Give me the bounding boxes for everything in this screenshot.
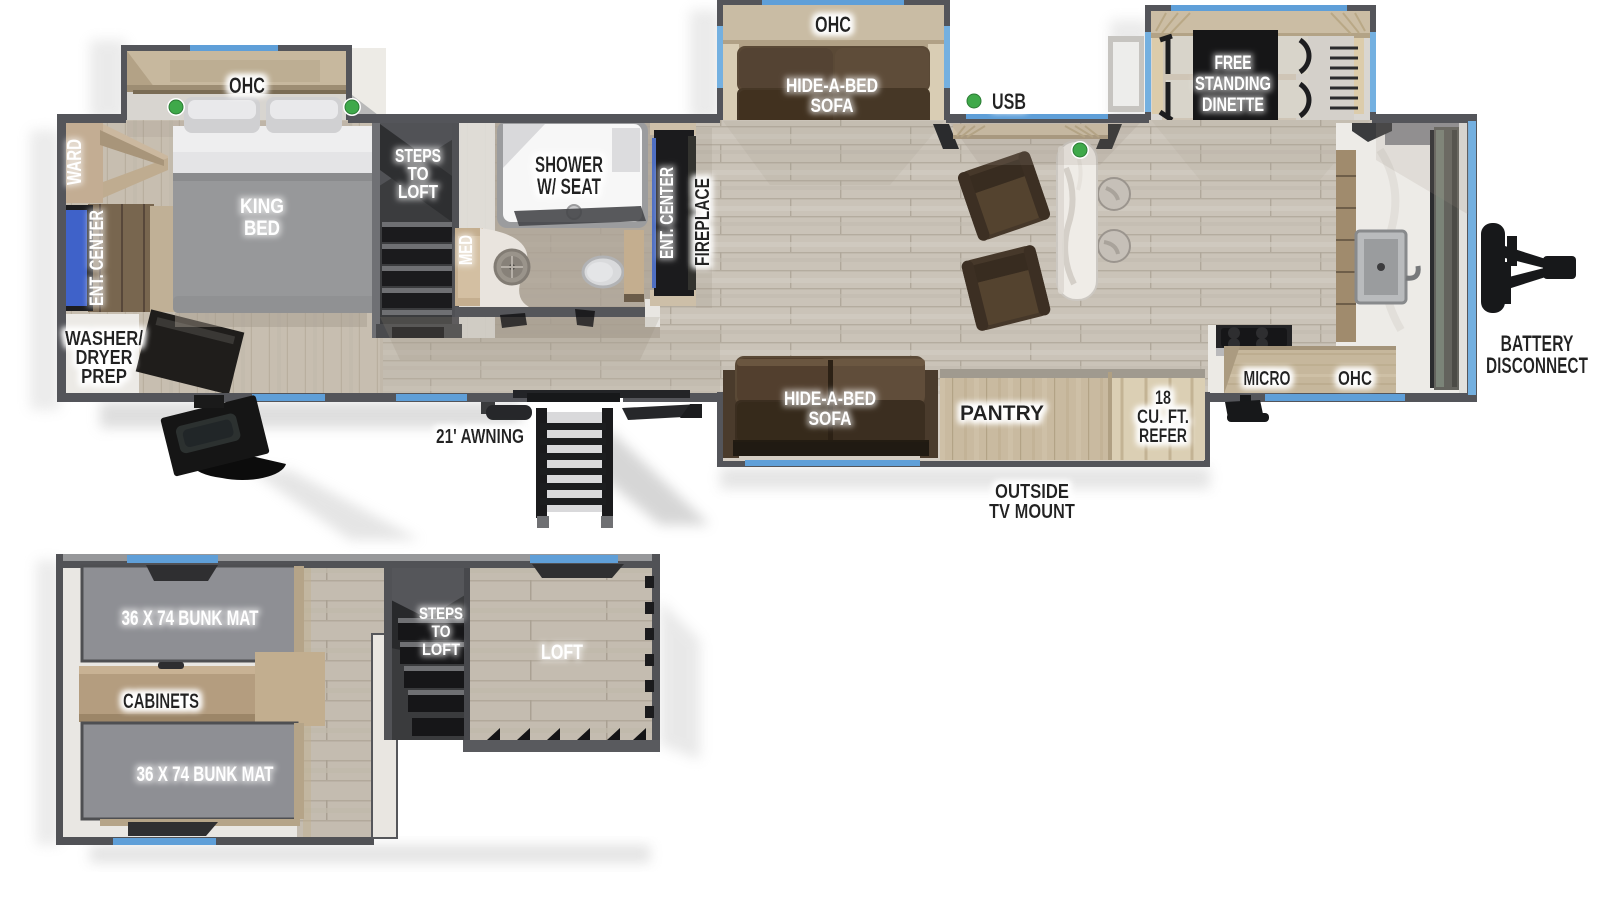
svg-text:PANTRY: PANTRY — [960, 402, 1044, 425]
svg-text:OUTSIDE: OUTSIDE — [995, 481, 1069, 503]
svg-text:36 X 74 BUNK MAT: 36 X 74 BUNK MAT — [122, 607, 259, 630]
svg-text:TO: TO — [432, 622, 451, 641]
svg-text:DISCONNECT: DISCONNECT — [1486, 353, 1588, 378]
svg-text:CU. FT.: CU. FT. — [1137, 407, 1189, 428]
svg-text:HIDE-A-BED: HIDE-A-BED — [786, 76, 878, 97]
svg-text:W/ SEAT: W/ SEAT — [537, 174, 601, 199]
svg-text:SOFA: SOFA — [811, 96, 854, 117]
svg-text:OHC: OHC — [229, 73, 265, 98]
svg-text:WARD: WARD — [64, 139, 86, 185]
svg-text:ENT. CENTER: ENT. CENTER — [87, 210, 108, 306]
svg-text:FREE: FREE — [1215, 53, 1252, 74]
svg-text:LOFT: LOFT — [422, 640, 461, 659]
svg-text:LOFT: LOFT — [398, 182, 438, 202]
svg-text:BED: BED — [244, 217, 280, 240]
svg-text:MICRO: MICRO — [1244, 368, 1291, 390]
svg-text:FIREPLACE: FIREPLACE — [692, 178, 714, 266]
svg-text:CABINETS: CABINETS — [123, 690, 199, 713]
svg-text:HIDE-A-BED: HIDE-A-BED — [784, 389, 876, 410]
svg-text:USB: USB — [992, 89, 1026, 114]
svg-text:STEPS: STEPS — [395, 146, 441, 166]
svg-text:18: 18 — [1155, 388, 1171, 409]
svg-text:DINETTE: DINETTE — [1202, 95, 1264, 116]
svg-text:PREP: PREP — [81, 366, 127, 388]
svg-text:36 X 74 BUNK MAT: 36 X 74 BUNK MAT — [137, 763, 274, 786]
svg-text:21' AWNING: 21' AWNING — [436, 426, 524, 448]
svg-text:REFER: REFER — [1139, 426, 1187, 447]
svg-text:STEPS: STEPS — [419, 604, 463, 623]
svg-text:STANDING: STANDING — [1195, 74, 1271, 95]
svg-text:TV MOUNT: TV MOUNT — [989, 501, 1075, 523]
svg-text:KING: KING — [240, 195, 284, 218]
svg-text:OHC: OHC — [815, 12, 851, 37]
svg-text:SOFA: SOFA — [809, 409, 852, 430]
svg-text:TO: TO — [408, 164, 429, 184]
svg-text:OHC: OHC — [1338, 368, 1372, 390]
svg-text:ENT. CENTER: ENT. CENTER — [657, 167, 677, 259]
svg-text:LOFT: LOFT — [541, 641, 583, 664]
svg-text:MED: MED — [456, 235, 476, 265]
